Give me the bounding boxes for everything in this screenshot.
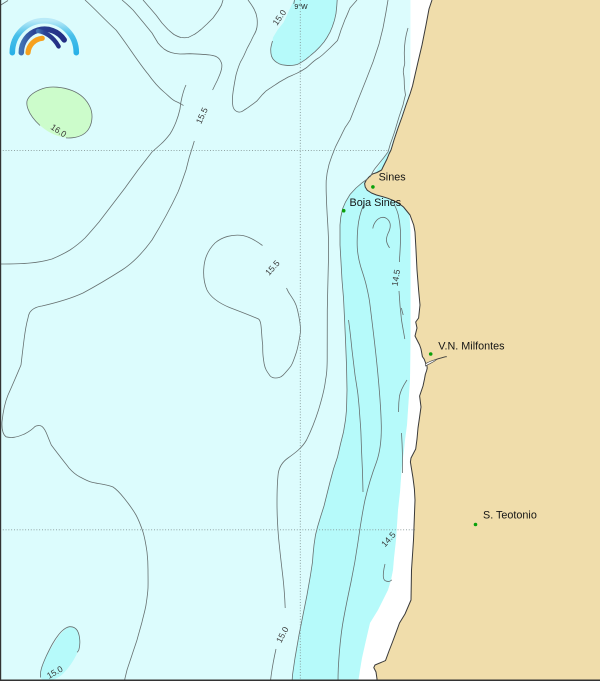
svg-text:S. Teotonio: S. Teotonio [483, 510, 537, 522]
svg-text:9°W: 9°W [294, 3, 308, 11]
svg-text:Sines: Sines [379, 172, 407, 184]
svg-text:Boja Sines: Boja Sines [350, 197, 402, 209]
svg-text:V.N. Milfontes: V.N. Milfontes [438, 340, 505, 352]
